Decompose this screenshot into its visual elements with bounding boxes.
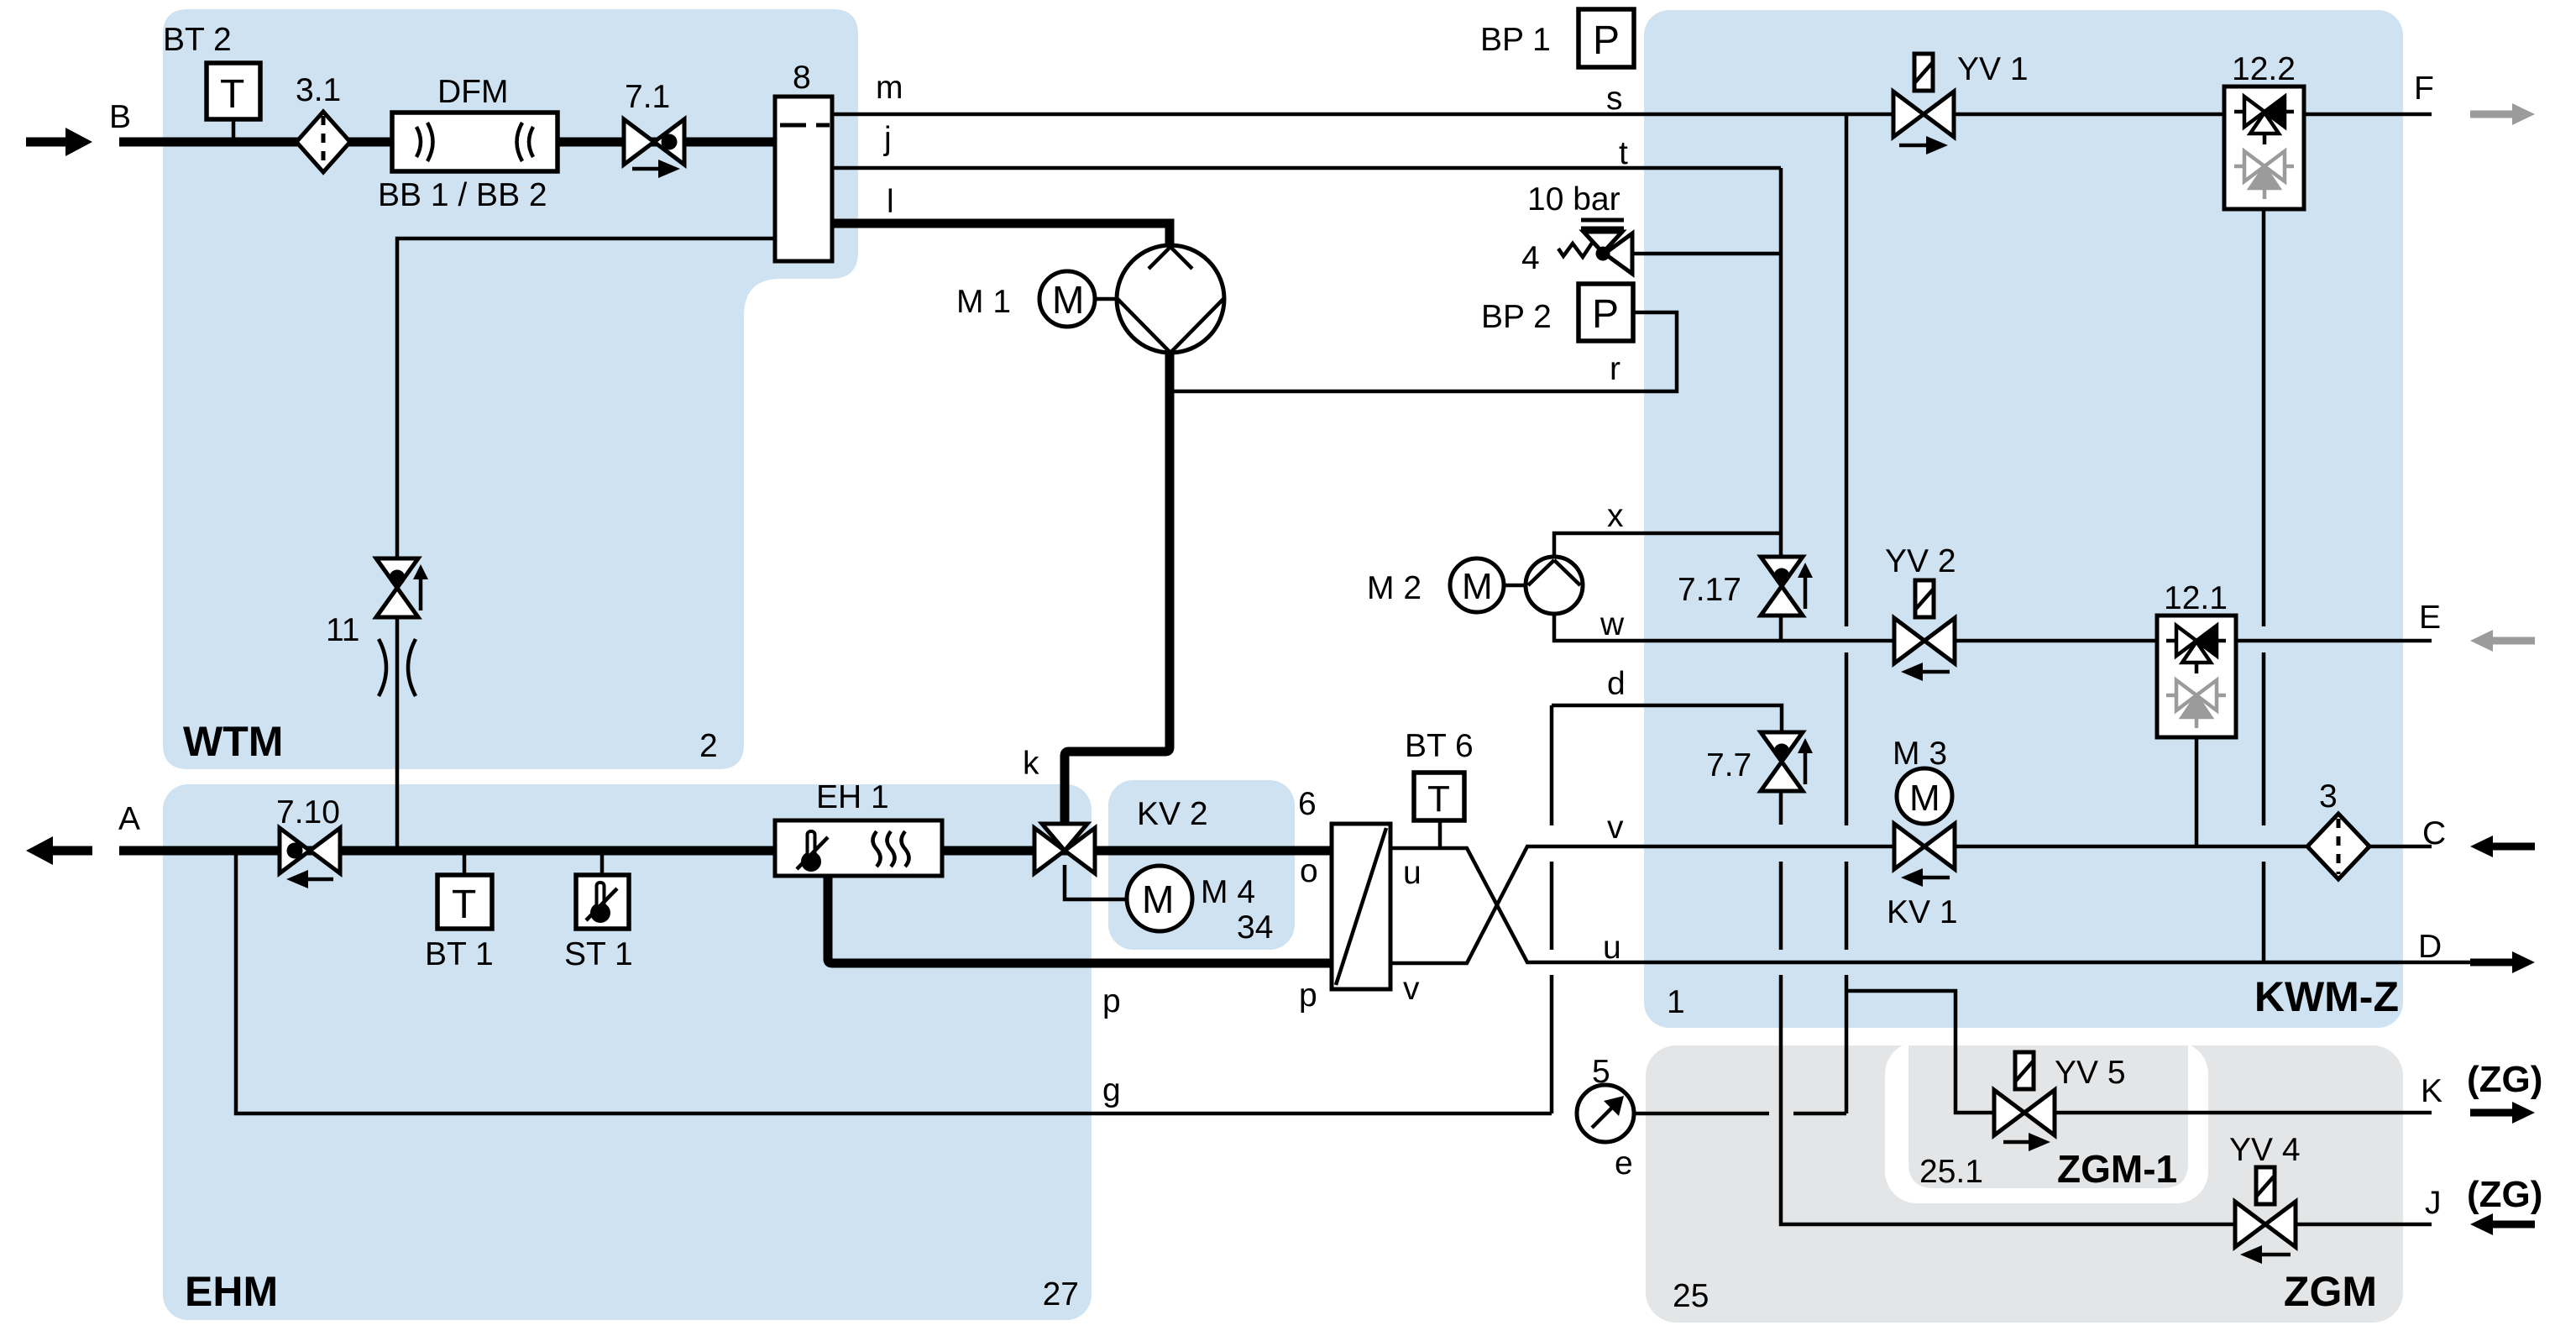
svg-text:BT 6: BT 6 (1405, 728, 1474, 764)
svg-text:BT 2: BT 2 (163, 22, 232, 58)
svg-text:E: E (2419, 600, 2441, 636)
svg-text:F: F (2414, 71, 2434, 107)
svg-text:7.10: 7.10 (276, 794, 340, 830)
svg-text:m: m (876, 70, 903, 106)
svg-text:11: 11 (326, 612, 360, 648)
svg-text:M: M (1142, 878, 1174, 921)
svg-text:M 2: M 2 (1367, 570, 1422, 606)
svg-text:p: p (1299, 977, 1317, 1014)
svg-text:BT 1: BT 1 (425, 936, 494, 972)
svg-text:K: K (2421, 1073, 2442, 1109)
svg-text:u: u (1403, 855, 1422, 891)
svg-text:T: T (1427, 778, 1450, 820)
svg-text:ZGM-1: ZGM-1 (2057, 1147, 2177, 1191)
svg-text:ZGM: ZGM (2284, 1268, 2377, 1315)
svg-text:WTM: WTM (183, 718, 283, 765)
svg-text:e: e (1615, 1145, 1633, 1181)
svg-text:p: p (1102, 983, 1121, 1019)
svg-text:YV 5: YV 5 (2055, 1055, 2126, 1091)
svg-text:d: d (1607, 666, 1626, 702)
svg-text:7.1: 7.1 (625, 79, 670, 115)
svg-text:KV 2: KV 2 (1137, 796, 1208, 832)
svg-text:J: J (2425, 1185, 2442, 1221)
svg-text:6: 6 (1298, 786, 1317, 822)
svg-text:3: 3 (2319, 778, 2338, 815)
svg-text:12.2: 12.2 (2232, 51, 2296, 87)
svg-text:1: 1 (1667, 984, 1685, 1020)
svg-text:YV 1: YV 1 (1957, 51, 2029, 87)
svg-text:BP 2: BP 2 (1481, 299, 1552, 335)
svg-text:(ZG): (ZG) (2467, 1174, 2542, 1215)
svg-text:P: P (1592, 292, 1619, 337)
svg-text:x: x (1607, 498, 1624, 534)
svg-text:10 bar: 10 bar (1527, 181, 1620, 217)
svg-text:BP 1: BP 1 (1480, 22, 1551, 58)
svg-text:l: l (887, 184, 894, 220)
svg-text:25: 25 (1673, 1278, 1709, 1314)
svg-text:M 4: M 4 (1201, 874, 1255, 910)
svg-text:D: D (2418, 929, 2442, 965)
svg-text:M: M (1462, 566, 1493, 607)
svg-text:M: M (1052, 278, 1084, 322)
svg-text:7.7: 7.7 (1706, 747, 1751, 783)
svg-text:YV 2: YV 2 (1885, 543, 1956, 579)
svg-text:KWM-Z: KWM-Z (2254, 973, 2399, 1020)
svg-text:B: B (109, 99, 131, 135)
svg-text:k: k (1023, 746, 1039, 782)
svg-text:M 3: M 3 (1893, 736, 1947, 772)
svg-text:4: 4 (1521, 240, 1540, 276)
svg-text:M 1: M 1 (956, 284, 1011, 320)
svg-text:s: s (1606, 81, 1623, 117)
svg-text:T: T (452, 883, 476, 927)
svg-text:8: 8 (793, 60, 811, 96)
svg-text:j: j (883, 121, 892, 157)
svg-text:u: u (1603, 930, 1621, 966)
svg-text:g: g (1102, 1072, 1121, 1108)
svg-text:o: o (1300, 853, 1318, 889)
svg-text:v: v (1403, 971, 1420, 1007)
svg-text:t: t (1619, 135, 1628, 171)
svg-text:EHM: EHM (185, 1268, 278, 1315)
svg-text:r: r (1610, 351, 1620, 387)
svg-text:12.1: 12.1 (2164, 580, 2228, 616)
svg-text:(ZG): (ZG) (2467, 1059, 2542, 1100)
svg-text:DFM: DFM (437, 74, 508, 110)
svg-text:34: 34 (1237, 909, 1273, 946)
svg-text:P: P (1593, 18, 1620, 63)
svg-text:25.1: 25.1 (1919, 1154, 1983, 1190)
svg-text:2: 2 (699, 728, 718, 764)
svg-text:w: w (1600, 606, 1625, 642)
svg-text:v: v (1607, 809, 1624, 846)
svg-text:KV 1: KV 1 (1887, 894, 1958, 930)
svg-text:3.1: 3.1 (296, 72, 341, 108)
svg-text:7.17: 7.17 (1678, 572, 1741, 608)
svg-text:M: M (1909, 778, 1940, 819)
svg-text:BB 1 / BB 2: BB 1 / BB 2 (378, 177, 547, 213)
svg-text:EH 1: EH 1 (816, 779, 889, 815)
svg-text:ST 1: ST 1 (564, 936, 633, 972)
svg-text:A: A (118, 801, 140, 837)
svg-text:YV 4: YV 4 (2229, 1132, 2301, 1168)
svg-text:27: 27 (1043, 1276, 1079, 1312)
svg-text:T: T (220, 72, 244, 117)
